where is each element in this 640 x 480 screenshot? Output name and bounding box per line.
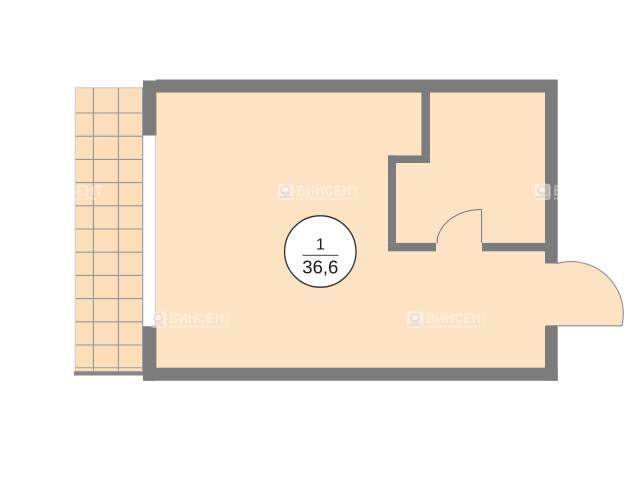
svg-text:1: 1 bbox=[316, 236, 325, 253]
svg-text:36,6: 36,6 bbox=[302, 257, 338, 278]
